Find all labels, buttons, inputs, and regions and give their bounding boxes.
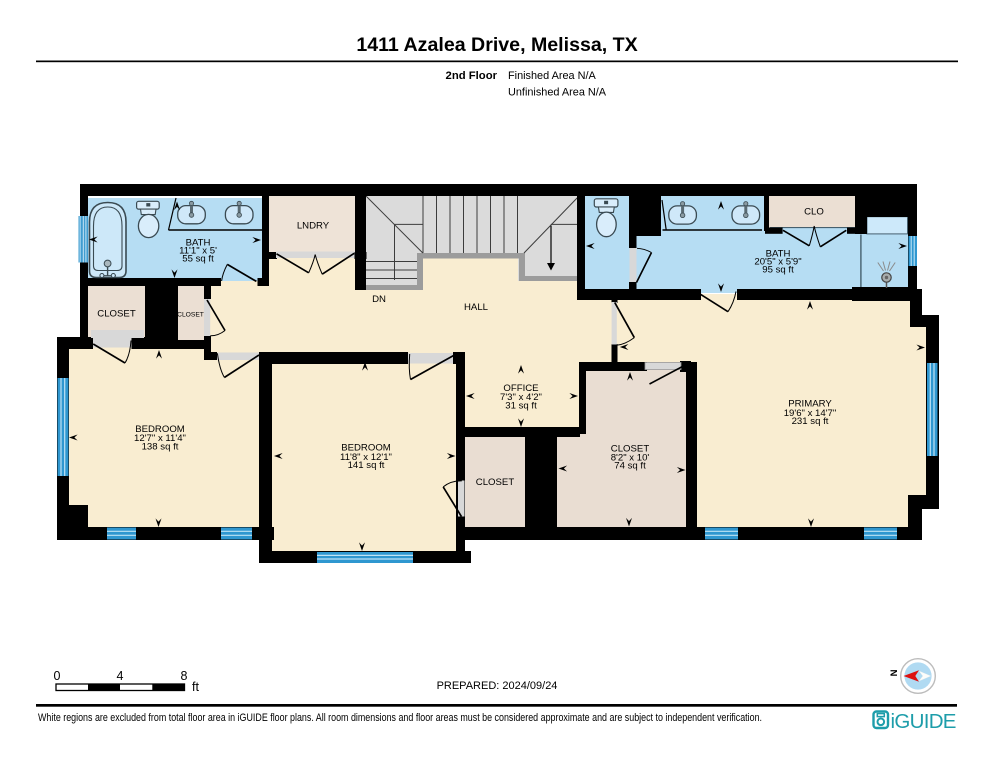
svg-text:141 sq ft: 141 sq ft xyxy=(348,460,385,471)
svg-text:CLOSET: CLOSET xyxy=(177,312,204,319)
svg-text:CLO: CLO xyxy=(804,207,824,218)
svg-text:1411 Azalea Drive, Melissa, TX: 1411 Azalea Drive, Melissa, TX xyxy=(356,34,637,56)
svg-text:4: 4 xyxy=(117,669,124,683)
svg-text:N: N xyxy=(887,669,898,676)
svg-text:74 sq ft: 74 sq ft xyxy=(614,461,646,472)
svg-text:Unfinished Area N/A: Unfinished Area N/A xyxy=(508,87,607,99)
svg-text:0: 0 xyxy=(54,669,61,683)
svg-text:8: 8 xyxy=(181,669,188,683)
svg-text:2nd Floor: 2nd Floor xyxy=(446,70,498,82)
svg-text:iGUIDE: iGUIDE xyxy=(891,710,956,733)
svg-text:55 sq ft: 55 sq ft xyxy=(182,254,214,265)
svg-text:Finished Area N/A: Finished Area N/A xyxy=(508,70,597,82)
svg-text:138 sq ft: 138 sq ft xyxy=(142,441,179,452)
svg-text:95 sq ft: 95 sq ft xyxy=(762,265,794,276)
svg-text:31 sq ft: 31 sq ft xyxy=(505,400,537,411)
svg-text:231 sq ft: 231 sq ft xyxy=(792,416,829,427)
svg-text:CLOSET: CLOSET xyxy=(97,309,136,320)
svg-text:PREPARED: 2024/09/24: PREPARED: 2024/09/24 xyxy=(437,680,558,692)
svg-text:LNDRY: LNDRY xyxy=(297,221,330,232)
svg-text:CLOSET: CLOSET xyxy=(476,477,515,488)
svg-text:White regions are excluded fro: White regions are excluded from total fl… xyxy=(38,712,762,724)
svg-text:HALL: HALL xyxy=(464,302,489,313)
svg-text:DN: DN xyxy=(372,294,386,305)
svg-text:ft: ft xyxy=(192,680,199,694)
